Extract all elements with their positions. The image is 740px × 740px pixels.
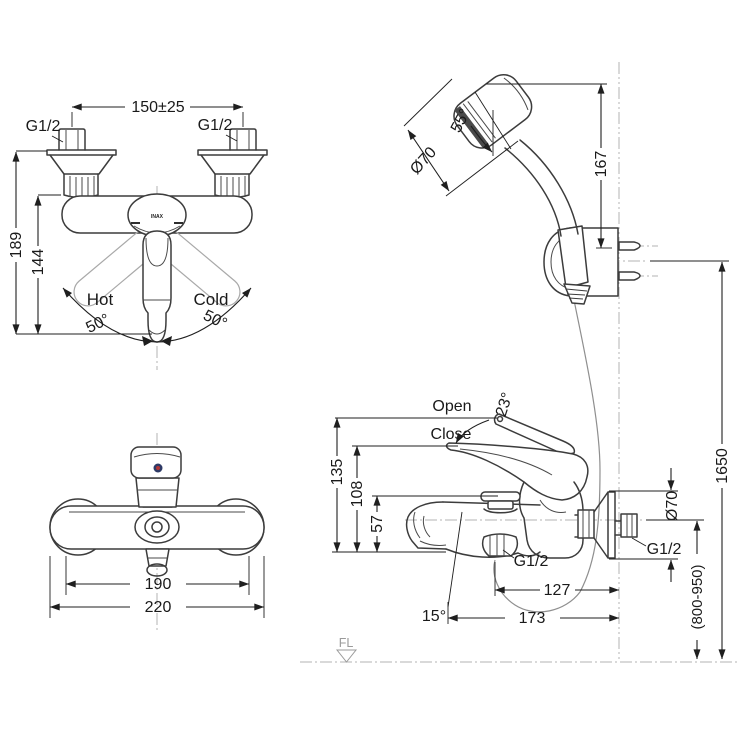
wall-dimensions: Ø70 G1/2 (800-950) 1650 <box>609 261 731 659</box>
label-close: Close <box>431 426 472 443</box>
dim-144: 144 <box>30 249 47 276</box>
dim-189: 189 <box>8 232 25 259</box>
label-cold: Cold <box>194 290 229 309</box>
angle-50-left: 50° <box>83 311 112 337</box>
handle-cap <box>131 447 181 478</box>
dim-total-height: 1650 <box>714 448 731 484</box>
label-hot: Hot <box>87 290 114 309</box>
thread-wall: G1/2 <box>647 541 682 558</box>
angle-23: 23° <box>493 390 517 418</box>
angle-50-right: 50° <box>200 307 229 333</box>
shower-view: 55° Ø70 167 <box>404 68 640 612</box>
handle-lever <box>143 231 171 342</box>
dim-167: 167 <box>593 151 610 178</box>
dim-135: 135 <box>329 459 346 486</box>
union-cone <box>594 492 615 558</box>
dim-install-height: (800-950) <box>689 564 706 629</box>
dim-220: 220 <box>145 599 172 616</box>
diverter-knob <box>481 492 520 501</box>
bracket-screw-bottom <box>619 272 640 280</box>
top-view: 190 220 <box>50 447 264 618</box>
thread-label-right: G1/2 <box>198 117 233 134</box>
label-open: Open <box>432 398 471 415</box>
technical-drawing: 150±25 G1/2 G1/2 189 144 Hot Cold 50° 50… <box>0 0 740 740</box>
dim-108: 108 <box>349 481 366 508</box>
bracket-screw-top <box>619 242 640 250</box>
floor-marker: FL <box>337 636 356 662</box>
dim-150: 150±25 <box>131 99 184 116</box>
floor-level-icon <box>337 650 356 662</box>
dim-173: 173 <box>519 610 546 627</box>
dim-57: 57 <box>369 515 386 533</box>
dim-union-diameter: Ø70 <box>664 491 681 521</box>
reference-lines <box>157 62 740 662</box>
side-view-dimensions: Open Close 23° 135 108 57 G1/2 127 173 <box>329 390 619 627</box>
angle-15: 15° <box>422 608 446 625</box>
drawing-canvas: 150±25 G1/2 G1/2 189 144 Hot Cold 50° 50… <box>0 0 740 740</box>
thread-outlet: G1/2 <box>514 553 549 570</box>
dim-127: 127 <box>544 582 571 599</box>
dim-190: 190 <box>145 576 172 593</box>
thread-label-left: G1/2 <box>26 118 61 135</box>
hose-outlet <box>483 534 518 556</box>
union-nut <box>578 510 594 538</box>
floor-label: FL <box>339 636 354 650</box>
temp-indicator-dot <box>156 466 160 470</box>
wall-thread <box>621 514 637 537</box>
front-view <box>47 129 267 346</box>
brand-mark: INAX <box>151 214 164 220</box>
dim-head-diameter: Ø70 <box>407 144 440 178</box>
